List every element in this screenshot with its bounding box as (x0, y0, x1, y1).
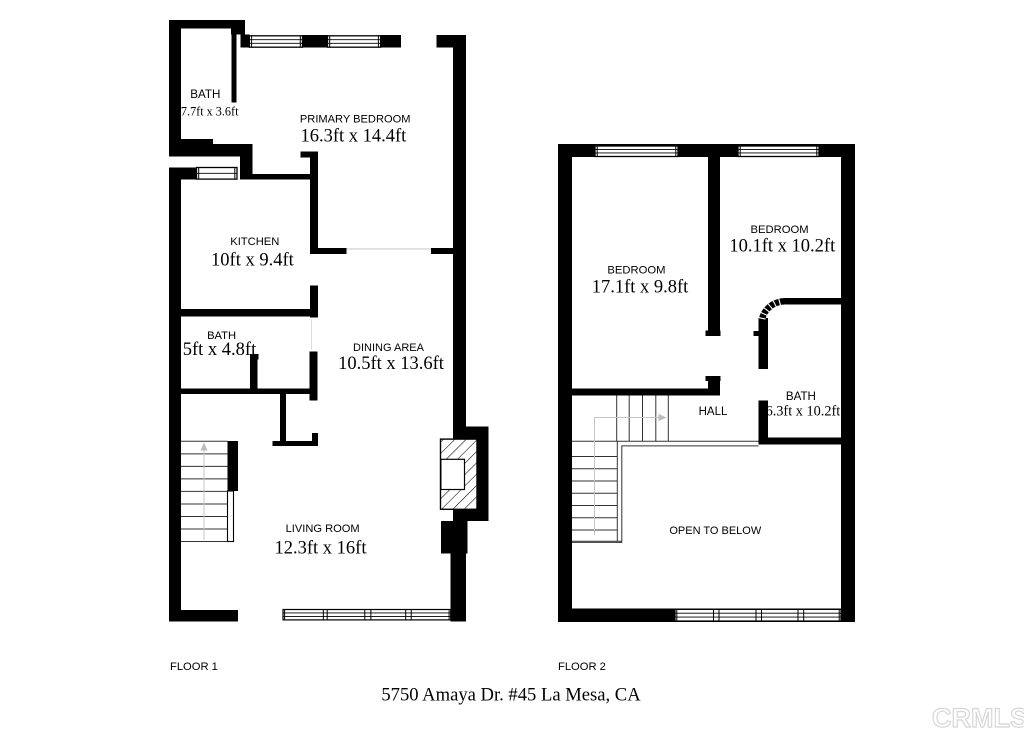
svg-text:BATH: BATH (190, 88, 220, 101)
svg-text:6.3ft x 10.2ft: 6.3ft x 10.2ft (766, 404, 841, 420)
svg-text:DINING AREA: DINING AREA (353, 342, 425, 354)
svg-text:FLOOR 1: FLOOR 1 (170, 661, 218, 673)
svg-text:BEDROOM: BEDROOM (607, 264, 665, 276)
svg-text:10.1ft x 10.2ft: 10.1ft x 10.2ft (729, 237, 836, 257)
svg-text:5750 Amaya Dr. #45 La Mesa, CA: 5750 Amaya Dr. #45 La Mesa, CA (381, 684, 641, 705)
svg-text:LIVING ROOM: LIVING ROOM (286, 523, 360, 535)
svg-text:FLOOR 2: FLOOR 2 (558, 661, 606, 673)
svg-text:10ft x 9.4ft: 10ft x 9.4ft (211, 251, 295, 271)
svg-text:12.3ft x 16ft: 12.3ft x 16ft (275, 539, 368, 559)
svg-text:OPEN TO BELOW: OPEN TO BELOW (669, 525, 762, 537)
svg-text:BATH: BATH (786, 390, 816, 403)
svg-text:7.7ft x 3.6ft: 7.7ft x 3.6ft (181, 104, 239, 118)
svg-text:16.3ft x 14.4ft: 16.3ft x 14.4ft (300, 126, 407, 146)
svg-text:CRMLS: CRMLS (932, 703, 1024, 730)
svg-text:KITCHEN: KITCHEN (230, 236, 279, 248)
svg-text:PRIMARY BEDROOM: PRIMARY BEDROOM (300, 113, 411, 125)
svg-text:HALL: HALL (699, 406, 728, 418)
svg-text:5ft x 4.8ft: 5ft x 4.8ft (183, 340, 257, 360)
svg-text:BEDROOM: BEDROOM (751, 224, 809, 236)
svg-text:10.5ft x 13.6ft: 10.5ft x 13.6ft (338, 354, 445, 374)
svg-text:17.1ft x 9.8ft: 17.1ft x 9.8ft (592, 278, 689, 298)
